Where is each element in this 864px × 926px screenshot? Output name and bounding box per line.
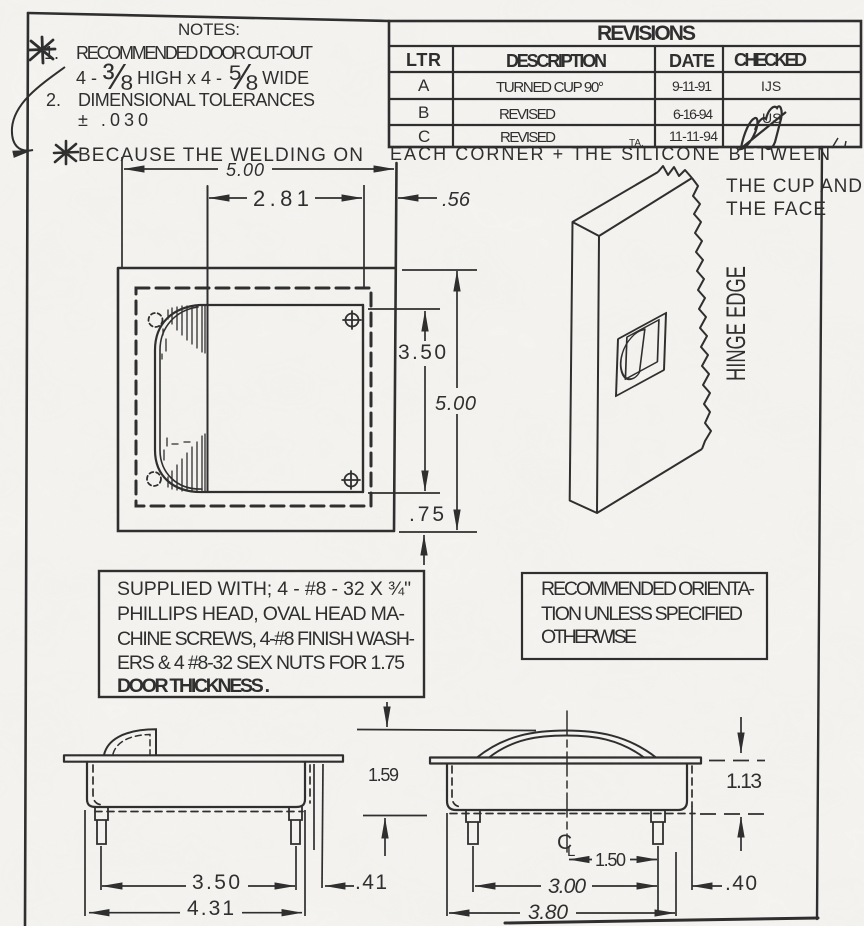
- svg-text:1.50: 1.50: [595, 850, 626, 870]
- svg-text:THE FACE: THE FACE: [726, 199, 826, 220]
- svg-text:IJS: IJS: [761, 78, 781, 94]
- svg-text:REVISIONS: REVISIONS: [597, 22, 696, 45]
- svg-text:5.00: 5.00: [435, 393, 476, 415]
- svg-text:.75: .75: [409, 503, 444, 526]
- svg-text:DESCRIPTION: DESCRIPTION: [506, 51, 607, 71]
- svg-text:.56: .56: [442, 189, 471, 211]
- svg-text:9-11-91: 9-11-91: [672, 78, 712, 94]
- svg-text:HINGE EDGE: HINGE EDGE: [721, 266, 751, 381]
- svg-text:DOOR THICKNESS .: DOOR THICKNESS .: [117, 675, 270, 697]
- svg-text:DIMENSIONAL TOLERANCES: DIMENSIONAL TOLERANCES: [78, 90, 315, 110]
- svg-text:.40: .40: [725, 872, 757, 895]
- svg-text:ERS & 4 #8-32 SEX NUTS FOR 1.7: ERS & 4 #8-32 SEX NUTS FOR 1.75: [117, 652, 405, 674]
- svg-text:A: A: [418, 76, 430, 95]
- svg-text:1.13: 1.13: [726, 770, 762, 793]
- svg-text:L: L: [567, 843, 575, 860]
- svg-text:6-16-94: 6-16-94: [673, 106, 713, 122]
- svg-text:3.80: 3.80: [528, 901, 568, 924]
- svg-text:4.31: 4.31: [187, 897, 234, 920]
- svg-text:.41: .41: [355, 871, 387, 894]
- svg-text:THE CUP AND: THE CUP AND: [726, 176, 862, 197]
- svg-text:5.00: 5.00: [226, 160, 264, 180]
- svg-text:11-11-94: 11-11-94: [669, 128, 718, 144]
- svg-text:PHILLIPS HEAD, OVAL HEAD MA-: PHILLIPS HEAD, OVAL HEAD MA-: [117, 603, 405, 625]
- svg-text:SUPPLIED WITH; 4 - #8 - 32 X ¾: SUPPLIED WITH; 4 - #8 - 32 X ¾": [117, 578, 411, 600]
- svg-text:TION UNLESS SPECIFIED: TION UNLESS SPECIFIED: [541, 603, 743, 625]
- svg-text:3.00: 3.00: [548, 875, 586, 898]
- svg-text:3.50: 3.50: [398, 341, 446, 364]
- svg-text:CHINE SCREWS, 4-#8 FINISH WASH: CHINE SCREWS, 4-#8 FINISH WASH-: [117, 628, 415, 650]
- svg-text:LTR: LTR: [406, 50, 441, 70]
- svg-text:2.81: 2.81: [253, 186, 309, 211]
- svg-text:B: B: [418, 103, 429, 122]
- svg-text:OTHERWISE: OTHERWISE: [541, 626, 637, 648]
- svg-text:2.: 2.: [46, 90, 61, 110]
- svg-text:EACH CORNER + THE SILICONE BET: EACH CORNER + THE SILICONE BETWEEN: [390, 144, 830, 164]
- svg-text:REVISED: REVISED: [499, 106, 558, 123]
- svg-text:TURNED CUP 90°: TURNED CUP 90°: [496, 79, 604, 96]
- svg-text:BECAUSE THE WELDING ON: BECAUSE THE WELDING ON: [78, 145, 363, 166]
- svg-text:3.50: 3.50: [192, 871, 240, 894]
- svg-text:CHECKED: CHECKED: [734, 50, 807, 70]
- svg-text:NOTES:: NOTES:: [178, 20, 240, 39]
- svg-text:1.59: 1.59: [368, 765, 399, 785]
- svg-text:DATE: DATE: [669, 51, 715, 71]
- svg-text:RECOMMENDED ORIENTA-: RECOMMENDED ORIENTA-: [541, 578, 755, 600]
